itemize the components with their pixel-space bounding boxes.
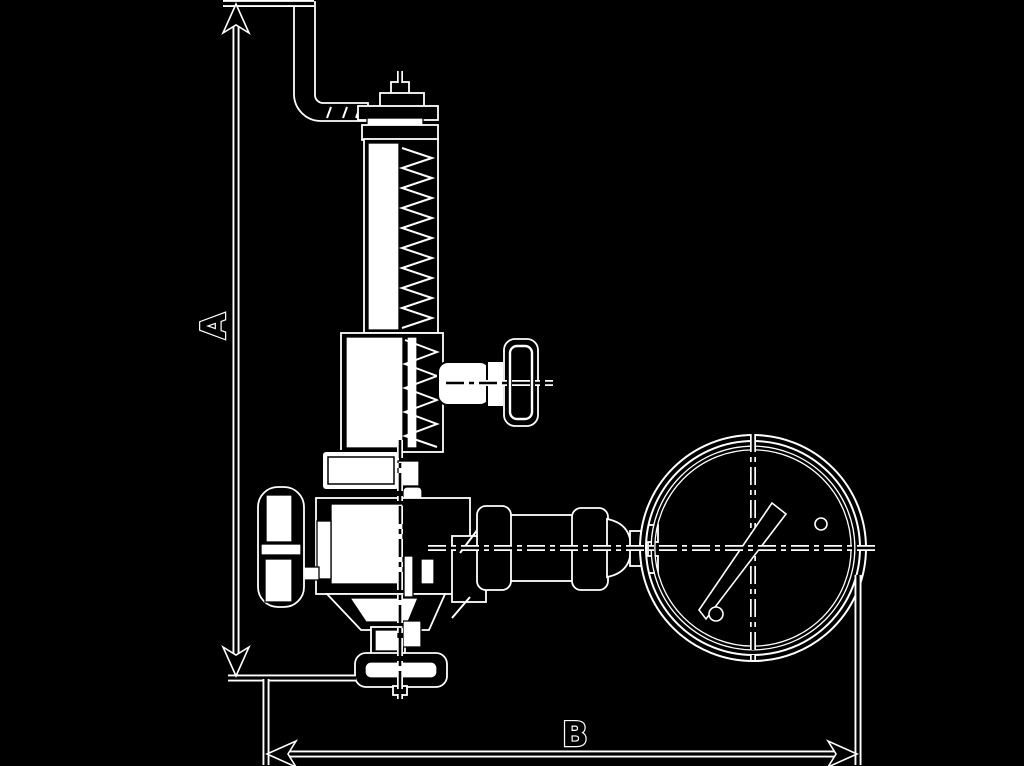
gauge-dial-dot-left [709,607,723,621]
dimension-a-label: A [194,312,234,339]
discharge-elbow-pipe [294,2,368,121]
valve-body [299,498,486,654]
handwheel [258,487,304,607]
bonnet-cap [358,82,438,140]
gauge-dial-dot-right [815,518,827,530]
valve-assembly [258,2,658,695]
valve-technical-drawing: A B [0,0,1024,766]
spring-bonnet-lower [341,333,443,452]
handwheel-hub [261,544,301,555]
spring-bonnet-upper [364,139,438,333]
dimension-b-label: B [562,715,588,755]
gauge-needle [699,503,786,619]
diagram-canvas: A B [0,0,1024,766]
